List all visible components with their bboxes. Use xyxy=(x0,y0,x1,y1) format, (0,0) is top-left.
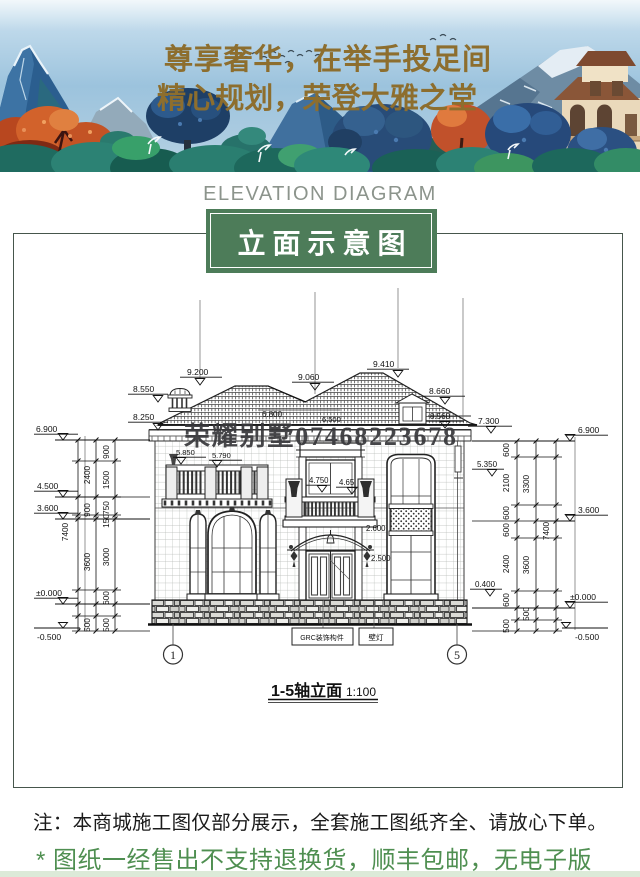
svg-text:3.600: 3.600 xyxy=(37,503,59,513)
svg-text:5.350: 5.350 xyxy=(477,460,498,469)
svg-text:4.750: 4.750 xyxy=(309,476,329,485)
svg-text:2400: 2400 xyxy=(502,554,511,573)
svg-text:2400: 2400 xyxy=(83,465,92,484)
svg-text:500: 500 xyxy=(83,618,92,632)
svg-text:8.560: 8.560 xyxy=(430,412,451,421)
svg-text:500: 500 xyxy=(502,619,511,633)
svg-text:600: 600 xyxy=(502,523,511,537)
svg-text:600: 600 xyxy=(502,506,511,520)
svg-text:1500: 1500 xyxy=(102,470,111,489)
svg-text:壁灯: 壁灯 xyxy=(369,632,384,642)
svg-text:3000: 3000 xyxy=(102,547,111,566)
svg-text:6.900: 6.900 xyxy=(578,425,600,435)
svg-text:荣耀别墅07468223678: 荣耀别墅07468223678 xyxy=(184,422,456,451)
svg-text:-0.500: -0.500 xyxy=(575,632,599,642)
svg-text:500: 500 xyxy=(522,607,531,621)
svg-text:8.660: 8.660 xyxy=(429,386,451,396)
svg-text:3.600: 3.600 xyxy=(578,505,600,515)
svg-text:600: 600 xyxy=(502,593,511,607)
svg-text:7400: 7400 xyxy=(542,521,551,540)
svg-text:5: 5 xyxy=(454,648,460,662)
svg-text:1:100: 1:100 xyxy=(346,685,376,699)
svg-text:5.790: 5.790 xyxy=(212,451,231,460)
svg-text:9.060: 9.060 xyxy=(298,372,320,382)
svg-text:±0.000: ±0.000 xyxy=(570,592,596,602)
svg-text:0.400: 0.400 xyxy=(475,580,496,589)
svg-text:600: 600 xyxy=(102,591,111,605)
svg-text:9.200: 9.200 xyxy=(187,367,209,377)
svg-text:-0.500: -0.500 xyxy=(37,632,61,642)
svg-text:GRC装饰构件: GRC装饰构件 xyxy=(300,633,344,642)
svg-text:1: 1 xyxy=(170,648,176,662)
svg-text:4.500: 4.500 xyxy=(37,481,59,491)
svg-text:7.300: 7.300 xyxy=(478,416,500,426)
svg-text:900: 900 xyxy=(102,445,111,459)
svg-text:1-5轴立面: 1-5轴立面 xyxy=(271,681,342,700)
svg-text:±0.000: ±0.000 xyxy=(36,588,62,598)
svg-text:4.65: 4.65 xyxy=(339,478,355,487)
svg-text:150: 150 xyxy=(102,514,111,528)
svg-text:2.600: 2.600 xyxy=(366,524,386,533)
svg-text:7400: 7400 xyxy=(61,522,70,541)
svg-text:9.410: 9.410 xyxy=(373,359,395,369)
svg-text:3600: 3600 xyxy=(522,555,531,574)
svg-text:500: 500 xyxy=(102,618,111,632)
svg-text:2100: 2100 xyxy=(502,473,511,492)
svg-text:8.550: 8.550 xyxy=(133,384,155,394)
svg-text:2.500: 2.500 xyxy=(371,554,391,563)
svg-text:8.250: 8.250 xyxy=(133,412,155,422)
svg-text:900: 900 xyxy=(83,503,92,517)
svg-text:3600: 3600 xyxy=(83,552,92,571)
svg-text:750: 750 xyxy=(102,501,111,515)
svg-text:6.800: 6.800 xyxy=(262,410,283,419)
svg-text:600: 600 xyxy=(502,443,511,457)
svg-text:6.900: 6.900 xyxy=(36,424,58,434)
svg-text:3300: 3300 xyxy=(522,474,531,493)
